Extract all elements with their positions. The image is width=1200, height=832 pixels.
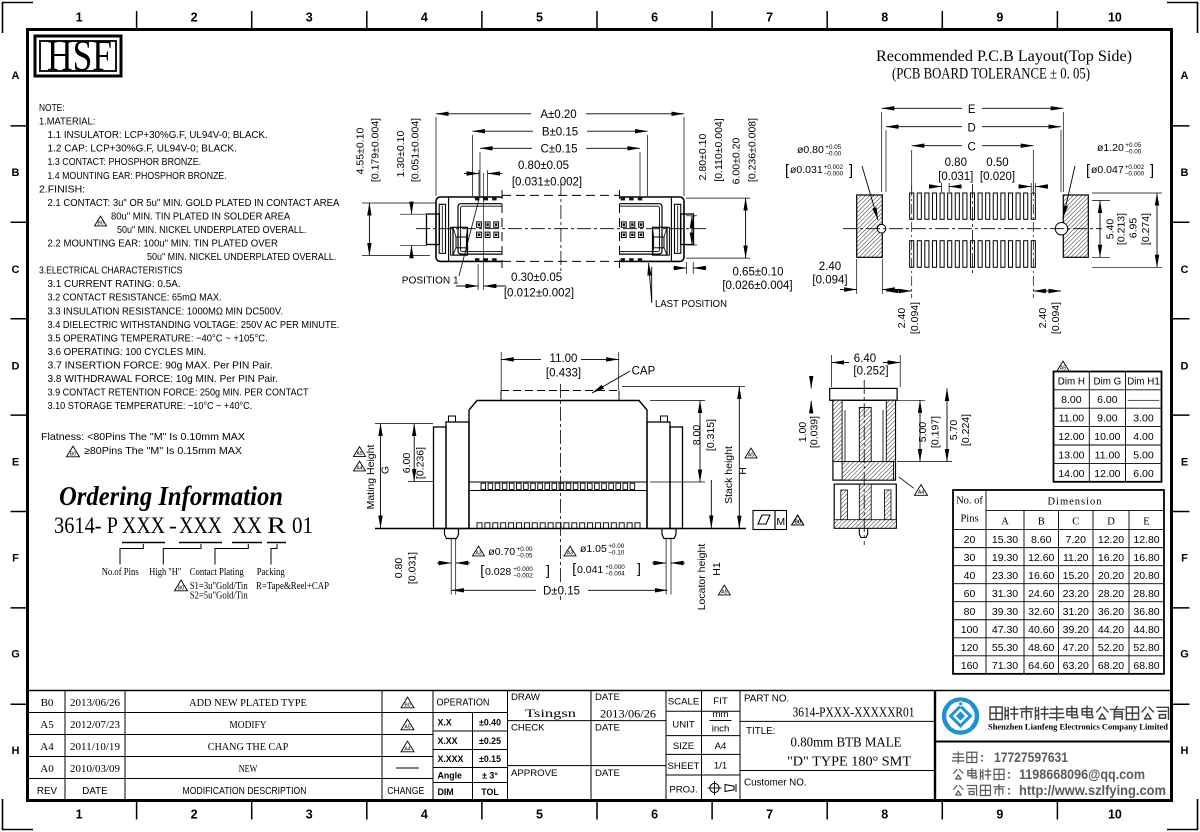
svg-text:CHANGE: CHANGE	[387, 786, 424, 797]
svg-text:TITLE:: TITLE:	[746, 726, 775, 737]
svg-text:3.8 WITHDRAWAL FORCE: 10g MIN: 3.8 WITHDRAWAL FORCE: 10g MIN. Per PIN P…	[48, 374, 278, 385]
svg-text:C: C	[1072, 517, 1079, 528]
svg-text::: :	[1007, 784, 1011, 798]
svg-text:SCALE: SCALE	[668, 697, 699, 708]
svg-text:0.041: 0.041	[577, 564, 603, 576]
svg-text:50u" MIN. NICKEL UNDERPLATED O: 50u" MIN. NICKEL UNDERPLATED OVERALL.	[117, 225, 306, 236]
svg-text:68.20: 68.20	[1098, 660, 1124, 672]
svg-text:71.30: 71.30	[992, 660, 1018, 672]
svg-text:−0.000: −0.000	[824, 171, 844, 178]
svg-text:16.80: 16.80	[1133, 552, 1159, 564]
svg-text:6.00: 6.00	[1133, 468, 1154, 480]
svg-text:10: 10	[1108, 11, 1122, 25]
svg-text:E: E	[1143, 517, 1149, 528]
svg-text:−0.002: −0.002	[513, 573, 533, 580]
svg-text:36.80: 36.80	[1133, 606, 1159, 618]
svg-text:LAST POSITION: LAST POSITION	[655, 298, 727, 310]
svg-text:±0.40: ±0.40	[479, 717, 501, 727]
svg-text:6.00±0.20: 6.00±0.20	[731, 138, 743, 185]
svg-text:3614- P: 3614- P	[54, 513, 118, 539]
svg-text:B0: B0	[178, 586, 184, 592]
svg-text:SIZE: SIZE	[673, 741, 694, 752]
svg-text:5.00: 5.00	[1133, 449, 1154, 461]
svg-text:3.5 OPERATING TEMPERATURE: −4: 3.5 OPERATING TEMPERATURE: −40°C ~ +105°…	[48, 333, 268, 344]
svg-text:R: R	[267, 513, 286, 539]
svg-text:Dimension: Dimension	[1047, 497, 1102, 508]
svg-text:6.40: 6.40	[854, 353, 876, 365]
svg-text:D: D	[968, 123, 976, 135]
svg-text:OPERATION: OPERATION	[437, 698, 490, 709]
svg-text:DATE: DATE	[595, 723, 620, 734]
svg-text:4.55±0.10: 4.55±0.10	[355, 128, 367, 175]
svg-text:39.30: 39.30	[992, 606, 1018, 618]
svg-text:3.6 OPERATING: 100 CYCLES MIN: 3.6 OPERATING: 100 CYCLES MIN.	[48, 347, 207, 358]
svg-text:C: C	[1181, 264, 1189, 276]
svg-text:4: 4	[421, 808, 428, 822]
svg-text:3.4 DIELECTRIC WITHSTANDING V: 3.4 DIELECTRIC WITHSTANDING VOLTAGE: 250…	[48, 320, 340, 331]
svg-text:1.3 CONTACT: PHOSPHOR BRONZE.: 1.3 CONTACT: PHOSPHOR BRONZE.	[48, 157, 202, 168]
svg-text:R=Tape&Reel+CAP: R=Tape&Reel+CAP	[256, 581, 329, 592]
svg-text:±0.15: ±0.15	[479, 754, 501, 764]
svg-text:16.20: 16.20	[1098, 552, 1124, 564]
svg-text:1.4 MOUNTING EAR: PHOSPHOR BR: 1.4 MOUNTING EAR: PHOSPHOR BRONZE.	[48, 171, 227, 182]
svg-text:0.80±0.05: 0.80±0.05	[518, 160, 569, 172]
svg-text:0.80: 0.80	[393, 558, 405, 579]
svg-text:X.XXX: X.XXX	[438, 754, 464, 764]
svg-text:D: D	[1181, 361, 1189, 373]
svg-text:Angle: Angle	[438, 771, 463, 781]
svg-text:0.65±0.10: 0.65±0.10	[732, 267, 783, 279]
svg-text:NOTE:: NOTE:	[39, 103, 65, 114]
svg-text:55.30: 55.30	[992, 642, 1018, 654]
svg-text:M: M	[776, 516, 785, 528]
svg-text:No.of Pins: No.of Pins	[102, 567, 139, 578]
svg-text:20.20: 20.20	[1098, 570, 1124, 582]
svg-text:A±0.20: A±0.20	[540, 109, 576, 121]
svg-text::: :	[1007, 768, 1011, 782]
svg-text:Tsingsn: Tsingsn	[525, 708, 576, 720]
svg-text:S2=5u"Gold/Tin: S2=5u"Gold/Tin	[190, 591, 248, 602]
svg-text:[0.039]: [0.039]	[809, 416, 821, 448]
svg-text:Customer NO.: Customer NO.	[744, 778, 807, 789]
svg-text:2: 2	[191, 11, 198, 25]
svg-text:1: 1	[76, 11, 83, 25]
svg-text:[: [	[480, 562, 484, 578]
svg-text:8: 8	[881, 11, 888, 25]
svg-text:HSF: HSF	[47, 31, 112, 80]
svg-text:ø1.20: ø1.20	[1097, 142, 1124, 154]
svg-text:]: ]	[546, 562, 550, 578]
svg-text:11.00: 11.00	[1095, 449, 1121, 461]
svg-text:[0.094]: [0.094]	[909, 302, 921, 334]
svg-text:3: 3	[306, 11, 313, 25]
svg-text:[0.012±0.002]: [0.012±0.002]	[504, 288, 574, 300]
svg-text:(PCB BOARD TOLERANCE ± 0. 05): (PCB BOARD TOLERANCE ± 0. 05)	[892, 66, 1090, 83]
svg-text:DATE: DATE	[595, 692, 620, 703]
svg-text:[0.213]: [0.213]	[1116, 213, 1128, 245]
svg-text:ø0.70: ø0.70	[488, 546, 515, 558]
svg-text:44.20: 44.20	[1098, 624, 1124, 636]
svg-text:ADD NEW PLATED TYPE: ADD NEW PLATED TYPE	[189, 697, 307, 709]
svg-text:28.20: 28.20	[1098, 588, 1124, 600]
svg-text:H: H	[12, 745, 20, 757]
svg-text:D: D	[12, 361, 20, 373]
svg-text:0.80: 0.80	[945, 157, 967, 169]
svg-text:28.80: 28.80	[1133, 588, 1159, 600]
svg-text:6.95: 6.95	[1128, 218, 1140, 239]
svg-text:3.ELECTRICAL CHARACTERISTICS: 3.ELECTRICAL CHARACTERISTICS	[39, 266, 183, 277]
svg-text:E: E	[12, 457, 19, 469]
svg-text:1.30±0.10: 1.30±0.10	[395, 131, 407, 178]
svg-text:Dim G: Dim G	[1094, 377, 1122, 388]
svg-text:A: A	[12, 70, 20, 82]
svg-text:32.60: 32.60	[1028, 606, 1054, 618]
svg-text:−0.00: −0.00	[1125, 149, 1141, 156]
svg-text:24.60: 24.60	[1028, 588, 1054, 600]
svg-text:7: 7	[766, 11, 773, 25]
svg-text:Recommended P.C.B Layout(Top S: Recommended P.C.B Layout(Top Side)	[876, 48, 1132, 65]
svg-text:High "H": High "H"	[149, 567, 181, 578]
svg-text:http://www.szlfying.com: http://www.szlfying.com	[1019, 783, 1166, 798]
svg-text:2.2 MOUNTING EAR: 100u" MIN.: 2.2 MOUNTING EAR: 100u" MIN. TIN PLATED …	[48, 239, 278, 250]
svg-text:[0.236±0.008]: [0.236±0.008]	[747, 118, 759, 182]
svg-text:5: 5	[536, 11, 543, 25]
svg-text:2.80±0.10: 2.80±0.10	[697, 134, 709, 181]
svg-text:ø0.80: ø0.80	[797, 144, 824, 156]
svg-text:F: F	[1181, 553, 1188, 565]
svg-text:12.00: 12.00	[1094, 468, 1120, 480]
svg-text:[0.020]: [0.020]	[980, 171, 1015, 183]
svg-text:[0.031]: [0.031]	[938, 171, 973, 183]
svg-text:40.60: 40.60	[1028, 624, 1054, 636]
svg-text:2013/06/26: 2013/06/26	[70, 697, 120, 709]
svg-text:Dim H1: Dim H1	[1127, 377, 1160, 388]
svg-text:1.2 CAP: LCP+30%G.F, UL94V-0;: 1.2 CAP: LCP+30%G.F, UL94V-0; BLACK.	[48, 144, 237, 155]
svg-text:ø0.031: ø0.031	[790, 164, 823, 176]
svg-text:Shenzhen Lianfeng Electronics: Shenzhen Lianfeng Electronics Company Li…	[988, 722, 1168, 732]
svg-text:2.FINISH:: 2.FINISH:	[39, 184, 85, 195]
svg-text:A5: A5	[356, 451, 362, 457]
svg-text:G: G	[380, 466, 392, 474]
svg-text:4: 4	[421, 11, 428, 25]
svg-text:6.00: 6.00	[1097, 394, 1118, 406]
svg-text:6: 6	[651, 808, 658, 822]
svg-text:80u" MIN. TIN PLATED IN SOLDER: 80u" MIN. TIN PLATED IN SOLDER AREA	[111, 211, 290, 222]
svg-text:UNIT: UNIT	[672, 720, 695, 731]
svg-text:mm: mm	[713, 709, 729, 720]
svg-text:[0.094]: [0.094]	[812, 275, 847, 287]
svg-text:±0.25: ±0.25	[479, 736, 501, 746]
svg-text:52.80: 52.80	[1133, 642, 1159, 654]
svg-text:B±0.15: B±0.15	[542, 127, 578, 139]
svg-text::: :	[980, 751, 984, 765]
svg-text:B0: B0	[41, 697, 54, 709]
svg-text:20.80: 20.80	[1133, 570, 1159, 582]
svg-text:1: 1	[76, 808, 83, 822]
svg-text:8.00: 8.00	[1061, 394, 1082, 406]
svg-text:[0.315]: [0.315]	[705, 419, 717, 451]
svg-text:9: 9	[996, 808, 1003, 822]
svg-text:X.XX: X.XX	[438, 736, 458, 746]
svg-text:3.10 STORAGE TEMPERATURE: −10°: 3.10 STORAGE TEMPERATURE: −10°C ~ +40°C.	[48, 401, 253, 412]
svg-text:0.50: 0.50	[986, 157, 1008, 169]
svg-text:[: [	[1086, 163, 1090, 179]
svg-text:11.00: 11.00	[550, 353, 578, 365]
svg-text:2013/06/26: 2013/06/26	[600, 709, 656, 721]
svg-text:A5: A5	[40, 719, 54, 731]
svg-text:68.80: 68.80	[1133, 660, 1159, 672]
svg-text:3.2 CONTACT RESISTANCE: 65mΩ: 3.2 CONTACT RESISTANCE: 65mΩ MAX.	[48, 293, 222, 304]
svg-text:A: A	[1001, 517, 1009, 528]
svg-text:0.80mm BTB MALE: 0.80mm BTB MALE	[791, 735, 902, 750]
svg-text:11.20: 11.20	[1063, 552, 1089, 564]
svg-text:C: C	[12, 264, 20, 276]
svg-text:−0.05: −0.05	[517, 553, 533, 560]
svg-text:[0.031±0.002]: [0.031±0.002]	[512, 177, 582, 189]
svg-text:2.40: 2.40	[819, 261, 841, 273]
svg-text:XXX: XXX	[122, 513, 165, 539]
svg-text:2012/07/23: 2012/07/23	[70, 719, 120, 731]
svg-text:A3: A3	[475, 551, 481, 557]
svg-text:———: ———	[1128, 394, 1160, 406]
svg-text:3.1 CURRENT RATING: 0.5A.: 3.1 CURRENT RATING: 0.5A.	[48, 279, 181, 290]
svg-text:−0.00: −0.00	[825, 151, 841, 158]
svg-text:12.20: 12.20	[1098, 534, 1124, 546]
svg-text:CHECK: CHECK	[511, 723, 545, 734]
svg-text:80: 80	[964, 606, 976, 618]
svg-text:Dim H: Dim H	[1058, 377, 1085, 388]
svg-text:C±0.15: C±0.15	[541, 144, 578, 156]
svg-text:XXX: XXX	[179, 513, 222, 539]
svg-text:20: 20	[964, 534, 976, 546]
svg-text:[0.026±0.004]: [0.026±0.004]	[722, 280, 792, 292]
svg-text:5.00: 5.00	[917, 422, 929, 443]
svg-text:A0: A0	[40, 763, 54, 775]
svg-text:± 3°: ± 3°	[482, 771, 498, 781]
svg-text:2010/03/09: 2010/03/09	[70, 763, 120, 775]
svg-text:A5: A5	[721, 590, 727, 596]
svg-text:A3: A3	[567, 551, 573, 557]
svg-text:[: [	[785, 163, 789, 179]
svg-text:REV: REV	[37, 786, 58, 797]
svg-text:1.00: 1.00	[797, 422, 809, 443]
svg-text:7.20: 7.20	[1066, 534, 1087, 546]
svg-text:C: C	[968, 142, 976, 154]
svg-text:X.X: X.X	[438, 717, 452, 727]
svg-text:52.20: 52.20	[1098, 642, 1124, 654]
svg-text:[0.274]: [0.274]	[1140, 213, 1152, 245]
svg-text:0.30±0.05: 0.30±0.05	[511, 272, 562, 284]
svg-text:100: 100	[961, 624, 979, 636]
svg-text:2: 2	[191, 808, 198, 822]
svg-text:17727597631: 17727597631	[994, 750, 1068, 765]
svg-text:1.1 INSULATOR: LCP+30%G.F, UL: 1.1 INSULATOR: LCP+30%G.F, UL94V-0; BLAC…	[48, 130, 268, 141]
svg-text:2.1 CONTACT: 3u" OR 5u" MIN.: 2.1 CONTACT: 3u" OR 5u" MIN. GOLD PLATED…	[48, 198, 340, 209]
svg-text:3.3 INSULATION RESISTANCE: 10: 3.3 INSULATION RESISTANCE: 1000MΩ MIN DC…	[48, 306, 284, 317]
svg-text:[0.051±0.004]: [0.051±0.004]	[410, 118, 422, 182]
svg-text:6: 6	[651, 11, 658, 25]
svg-text:A4: A4	[715, 741, 727, 752]
svg-text:0.028: 0.028	[485, 566, 511, 578]
svg-text:160: 160	[961, 660, 979, 672]
svg-text:9.00: 9.00	[1097, 413, 1118, 425]
svg-text:[0.179±0.004]: [0.179±0.004]	[370, 118, 382, 182]
svg-text:Mating Height: Mating Height	[365, 445, 377, 510]
svg-text:E: E	[968, 104, 976, 116]
svg-text:1.MATERIAL:: 1.MATERIAL:	[39, 117, 95, 128]
svg-text:31.20: 31.20	[1063, 606, 1089, 618]
svg-text:2011/10/19: 2011/10/19	[70, 741, 120, 753]
svg-text:[0.224]: [0.224]	[960, 414, 972, 446]
svg-text:Locator height: Locator height	[696, 544, 708, 611]
svg-text:≥80Pins The "M" Is 0.15mm MAX: ≥80Pins The "M" Is 0.15mm MAX	[84, 446, 242, 457]
svg-text:63.20: 63.20	[1063, 660, 1089, 672]
svg-text:B0: B0	[404, 703, 410, 709]
svg-text:01: 01	[292, 513, 313, 539]
svg-text:PROJ.: PROJ.	[669, 785, 697, 796]
svg-text:48.60: 48.60	[1028, 642, 1054, 654]
svg-text:36.20: 36.20	[1098, 606, 1124, 618]
svg-text:3.7 INSERTION FORCE: 90g MAX.: 3.7 INSERTION FORCE: 90g MAX. Per PIN Pa…	[48, 360, 273, 371]
svg-text:]: ]	[849, 163, 853, 179]
svg-text:G: G	[1180, 649, 1189, 661]
svg-text:[0.197]: [0.197]	[930, 416, 942, 448]
svg-text:APPROVE: APPROVE	[511, 768, 557, 779]
svg-text:]: ]	[1150, 163, 1154, 179]
svg-text:CHANG THE CAP: CHANG THE CAP	[208, 741, 289, 753]
svg-text:F: F	[12, 553, 19, 565]
svg-text:[: [	[572, 560, 576, 576]
svg-text:1198668096@qq.com: 1198668096@qq.com	[1019, 767, 1145, 782]
svg-text:DATE: DATE	[82, 786, 108, 797]
svg-text:3.9 CONTACT RETENTION FORCE:: 3.9 CONTACT RETENTION FORCE: 250g MIN. P…	[48, 388, 310, 399]
svg-text:inch: inch	[712, 724, 730, 735]
svg-text:3.00: 3.00	[1133, 413, 1154, 425]
svg-text:DIM: DIM	[438, 787, 454, 797]
svg-text:15.20: 15.20	[1063, 570, 1089, 582]
svg-text:POSITION 1: POSITION 1	[402, 275, 459, 287]
svg-text:D±0.15: D±0.15	[543, 586, 580, 598]
svg-text:PART NO.: PART NO.	[744, 694, 789, 705]
svg-text:"D" TYPE 180° SMT: "D" TYPE 180° SMT	[787, 754, 912, 769]
svg-text:Stack height: Stack height	[723, 446, 735, 504]
svg-text:A5: A5	[748, 453, 754, 459]
svg-text:D: D	[1107, 517, 1115, 528]
svg-text:A5: A5	[404, 725, 410, 731]
svg-text:7: 7	[766, 808, 773, 822]
svg-text:15.30: 15.30	[992, 534, 1018, 546]
svg-text:Pins: Pins	[960, 514, 978, 525]
svg-text:E: E	[1181, 457, 1188, 469]
svg-text:Ordering Information: Ordering Information	[59, 481, 283, 511]
svg-text:5: 5	[536, 808, 543, 822]
svg-text:SHEET: SHEET	[668, 761, 700, 772]
svg-text:3614-PXXX-XXXXXR01: 3614-PXXX-XXXXXR01	[793, 705, 915, 720]
svg-text:Packing: Packing	[257, 567, 285, 578]
svg-text:12.60: 12.60	[1028, 552, 1054, 564]
svg-text:23.30: 23.30	[992, 570, 1018, 582]
svg-text:2.40: 2.40	[896, 308, 908, 329]
svg-text:A4: A4	[40, 741, 54, 753]
svg-text:B0: B0	[70, 452, 76, 458]
svg-text:ø0.047: ø0.047	[1091, 164, 1124, 176]
svg-text:5.40: 5.40	[1104, 219, 1116, 240]
svg-text:MODIFY: MODIFY	[229, 719, 266, 731]
svg-text:8.00: 8.00	[691, 425, 703, 446]
svg-text:B: B	[1181, 167, 1189, 179]
svg-text:40: 40	[964, 570, 976, 582]
svg-text:-: -	[169, 513, 177, 539]
svg-text:19.30: 19.30	[992, 552, 1018, 564]
svg-text:ø1.05: ø1.05	[580, 543, 607, 555]
svg-text:4.00: 4.00	[1133, 431, 1154, 443]
svg-text:H: H	[1181, 745, 1189, 757]
svg-text:44.80: 44.80	[1133, 624, 1159, 636]
svg-text:6.00: 6.00	[401, 453, 413, 474]
svg-text:−0.004: −0.004	[605, 571, 625, 578]
svg-text:16.60: 16.60	[1028, 570, 1054, 582]
svg-text:23.20: 23.20	[1063, 588, 1089, 600]
svg-text:3: 3	[306, 808, 313, 822]
svg-text:120: 120	[961, 642, 979, 654]
svg-text:A4: A4	[356, 466, 362, 472]
svg-text:]: ]	[637, 560, 641, 576]
svg-text:[0.031]: [0.031]	[407, 552, 419, 584]
svg-text:DRAW: DRAW	[511, 692, 541, 703]
svg-text:−0.10: −0.10	[608, 550, 624, 557]
svg-text:B0: B0	[97, 221, 103, 227]
svg-text:Flatness: <80Pins The "M" Is 0: Flatness: <80Pins The "M" Is 0.10mm MAX	[41, 432, 245, 443]
svg-text:12.00: 12.00	[1058, 431, 1084, 443]
svg-text:14.00: 14.00	[1058, 468, 1084, 480]
svg-text:H1: H1	[711, 562, 723, 576]
svg-text:12.80: 12.80	[1133, 534, 1159, 546]
svg-text:47.30: 47.30	[992, 624, 1018, 636]
svg-text:CAP: CAP	[632, 366, 656, 378]
svg-text:−0.000: −0.000	[1125, 171, 1145, 178]
svg-text:50u" MIN. NICKEL UNDERPLATED O: 50u" MIN. NICKEL UNDERPLATED OVERALL.	[147, 252, 336, 263]
svg-text:B0: B0	[795, 520, 801, 526]
svg-text:2.40: 2.40	[1037, 308, 1049, 329]
svg-text:60: 60	[964, 588, 976, 600]
svg-text:B: B	[12, 167, 20, 179]
svg-text:A4: A4	[918, 490, 924, 496]
svg-text:NEW: NEW	[239, 763, 258, 775]
svg-text:11.00: 11.00	[1059, 413, 1085, 425]
svg-text:[0.236]: [0.236]	[415, 447, 427, 479]
svg-text:8: 8	[881, 808, 888, 822]
svg-text:39.20: 39.20	[1063, 624, 1089, 636]
svg-text:[0.110±0.004]: [0.110±0.004]	[713, 118, 725, 181]
svg-text:31.30: 31.30	[992, 588, 1018, 600]
svg-text:MODIFICATION DESCRIPTION: MODIFICATION DESCRIPTION	[183, 786, 307, 797]
svg-text:XX: XX	[232, 513, 262, 539]
svg-text:TOL: TOL	[481, 787, 499, 797]
svg-text:10.00: 10.00	[1094, 431, 1120, 443]
svg-text:5.70: 5.70	[948, 420, 960, 441]
svg-text:9: 9	[996, 11, 1003, 25]
svg-text:13.00: 13.00	[1058, 449, 1084, 461]
svg-text:[0.433]: [0.433]	[546, 368, 581, 380]
svg-text:H: H	[737, 467, 749, 475]
svg-text:Contact Plating: Contact Plating	[190, 567, 244, 578]
svg-text:A4: A4	[404, 747, 410, 753]
svg-text:10: 10	[1108, 808, 1122, 822]
svg-text:DATE: DATE	[595, 768, 620, 779]
svg-text:No. of: No. of	[956, 496, 983, 507]
svg-text:FIT: FIT	[713, 696, 728, 707]
svg-text:64.60: 64.60	[1028, 660, 1054, 672]
